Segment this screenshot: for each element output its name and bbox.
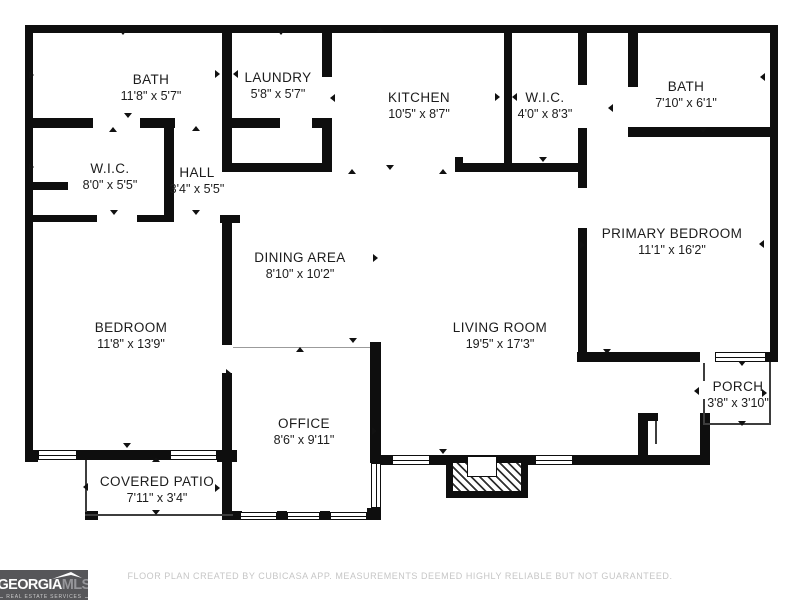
window-pane-line <box>241 516 276 517</box>
ceiling-break-line <box>655 421 657 444</box>
door-window-arrow-icon <box>124 113 132 118</box>
room-name: BATH <box>655 80 717 95</box>
door-window-arrow-icon <box>386 165 394 170</box>
footer-disclaimer: FLOOR PLAN CREATED BY CUBICASA APP. MEAS… <box>0 571 800 581</box>
wall <box>504 25 512 172</box>
door-window-arrow-icon <box>760 73 765 81</box>
room-name: KITCHEN <box>388 91 450 106</box>
door-window-arrow-icon <box>330 94 335 102</box>
room-label-dining-area: DINING AREA8'10" x 10'2" <box>254 251 345 281</box>
wall <box>367 508 381 520</box>
wall <box>25 25 778 33</box>
door-window-arrow-icon <box>226 369 231 377</box>
wall <box>577 352 700 362</box>
room-name: OFFICE <box>274 417 335 432</box>
wall <box>25 450 38 462</box>
room-name: PORCH <box>707 380 769 395</box>
wall <box>430 455 446 465</box>
room-name: LIVING ROOM <box>453 321 547 336</box>
door-window-arrow-icon <box>495 93 500 101</box>
room-label-hall: HALL3'4" x 5'5" <box>170 166 225 196</box>
logo-tagline: REAL ESTATE SERVICES <box>0 594 88 600</box>
door-window-arrow-icon <box>277 30 285 35</box>
door-window-arrow-icon <box>580 241 585 249</box>
roof-icon <box>51 571 83 580</box>
door-window-arrow-icon <box>608 104 613 112</box>
window <box>535 455 573 465</box>
door-window-arrow-icon <box>123 443 131 448</box>
door-window-arrow-icon <box>296 347 304 352</box>
window-pane-line <box>536 460 572 461</box>
fireplace-firebox <box>467 456 497 477</box>
floor-plan-canvas: BATH11'8" x 5'7"LAUNDRY5'8" x 5'7"KITCHE… <box>0 0 800 600</box>
wall <box>232 118 280 128</box>
door-window-arrow-icon <box>192 210 200 215</box>
room-name: DINING AREA <box>254 251 345 266</box>
wall <box>370 342 381 463</box>
wall <box>222 25 232 130</box>
room-dimensions: 5'8" x 5'7" <box>244 87 311 101</box>
room-name: LAUNDRY <box>244 71 311 86</box>
window-pane-line <box>171 455 216 456</box>
door-window-arrow-icon <box>603 349 611 354</box>
ceiling-break-line <box>703 423 771 425</box>
room-name: W.I.C. <box>518 91 573 106</box>
room-label-primary-bedroom: PRIMARY BEDROOM11'1" x 16'2" <box>602 227 743 257</box>
door-window-arrow-icon <box>192 126 200 131</box>
door-window-arrow-icon <box>699 128 707 133</box>
door-window-arrow-icon <box>439 449 447 454</box>
door-window-arrow-icon <box>376 27 384 32</box>
wall <box>137 215 173 222</box>
door-window-arrow-icon <box>119 30 127 35</box>
window <box>170 450 217 460</box>
door-window-arrow-icon <box>759 240 764 248</box>
ceiling-break-line <box>703 399 705 425</box>
window-pane-line <box>39 455 76 456</box>
window <box>371 463 381 508</box>
room-dimensions: 3'8" x 3'10" <box>707 396 769 410</box>
door-window-arrow-icon <box>29 71 34 79</box>
wall <box>25 215 97 222</box>
room-label-office: OFFICE8'6" x 9'11" <box>274 417 335 447</box>
floor-plan: BATH11'8" x 5'7"LAUNDRY5'8" x 5'7"KITCHE… <box>0 0 800 600</box>
room-dimensions: 11'1" x 16'2" <box>602 243 743 257</box>
wall <box>25 118 93 128</box>
window-pane-line <box>288 516 319 517</box>
room-dimensions: 3'4" x 5'5" <box>170 182 225 196</box>
wall <box>312 118 332 128</box>
room-label-bath: BATH7'10" x 6'1" <box>655 80 717 110</box>
door-window-arrow-icon <box>539 157 547 162</box>
window-pane-line <box>393 460 429 461</box>
door-window-arrow-icon <box>738 361 746 366</box>
wall <box>462 163 587 172</box>
room-label-covered-patio: COVERED PATIO7'11" x 3'4" <box>100 475 214 505</box>
wall <box>766 352 778 362</box>
window-pane-line <box>331 516 366 517</box>
room-dimensions: 8'0" x 5'5" <box>83 178 138 192</box>
window-pane-line <box>716 357 765 358</box>
wall <box>222 373 232 520</box>
door-window-arrow-icon <box>738 421 746 426</box>
door-window-arrow-icon <box>215 70 220 78</box>
window-pane-line <box>376 464 377 507</box>
room-label-laundry: LAUNDRY5'8" x 5'7" <box>244 71 311 101</box>
window <box>392 455 430 465</box>
door-window-arrow-icon <box>110 210 118 215</box>
door-window-arrow-icon <box>373 254 378 262</box>
door-window-arrow-icon <box>29 163 34 171</box>
ceiling-break-line <box>769 362 771 425</box>
window <box>330 512 367 520</box>
window <box>240 512 277 520</box>
georgia-mls-logo: GEORGIAMLS REAL ESTATE SERVICES <box>0 570 88 600</box>
door-window-arrow-icon <box>109 127 117 132</box>
door-window-arrow-icon <box>152 510 160 515</box>
door-window-arrow-icon <box>512 93 517 101</box>
room-name: COVERED PATIO <box>100 475 214 490</box>
wall <box>320 511 330 520</box>
window <box>38 450 77 460</box>
door-window-arrow-icon <box>233 70 238 78</box>
wall <box>528 455 535 465</box>
room-label-porch: PORCH3'8" x 3'10" <box>707 380 769 410</box>
door-window-arrow-icon <box>372 427 377 435</box>
room-label-bedroom: BEDROOM11'8" x 13'9" <box>95 321 168 351</box>
room-name: BEDROOM <box>95 321 168 336</box>
room-dimensions: 19'5" x 17'3" <box>453 337 547 351</box>
wall <box>25 182 68 190</box>
ceiling-break-line <box>703 363 705 381</box>
wall <box>25 25 33 462</box>
door-window-arrow-icon <box>439 169 447 174</box>
wall <box>140 118 175 128</box>
wall <box>277 511 287 520</box>
room-name: PRIMARY BEDROOM <box>602 227 743 242</box>
room-dimensions: 4'0" x 8'3" <box>518 107 573 121</box>
wall <box>322 25 332 77</box>
door-window-arrow-icon <box>694 387 699 395</box>
room-dimensions: 7'11" x 3'4" <box>100 491 214 505</box>
door-window-arrow-icon <box>152 457 160 462</box>
wall <box>770 25 778 362</box>
wall <box>578 128 587 188</box>
wall <box>628 25 638 87</box>
room-label-w-i-c: W.I.C.8'0" x 5'5" <box>83 162 138 192</box>
wall <box>578 25 587 85</box>
room-label-bath: BATH11'8" x 5'7" <box>121 73 182 103</box>
room-name: W.I.C. <box>83 162 138 177</box>
room-dimensions: 11'8" x 13'9" <box>95 337 168 351</box>
wall <box>380 455 392 465</box>
door-window-arrow-icon <box>215 484 220 492</box>
room-dimensions: 8'6" x 9'11" <box>274 433 335 447</box>
door-window-arrow-icon <box>83 483 88 491</box>
room-label-living-room: LIVING ROOM19'5" x 17'3" <box>453 321 547 351</box>
window <box>287 512 320 520</box>
wall <box>700 413 710 465</box>
logo-brand-row: GEORGIAMLS <box>0 574 88 592</box>
room-dimensions: 11'8" x 5'7" <box>121 89 182 103</box>
room-name: BATH <box>121 73 182 88</box>
room-dimensions: 10'5" x 8'7" <box>388 107 450 121</box>
room-label-kitchen: KITCHEN10'5" x 8'7" <box>388 91 450 121</box>
wall <box>222 163 332 172</box>
room-label-w-i-c: W.I.C.4'0" x 8'3" <box>518 91 573 121</box>
wall <box>222 215 232 345</box>
room-dimensions: 8'10" x 10'2" <box>254 267 345 281</box>
room-dimensions: 7'10" x 6'1" <box>655 96 717 110</box>
door-window-arrow-icon <box>348 169 356 174</box>
door-window-arrow-icon <box>349 338 357 343</box>
room-name: HALL <box>170 166 225 181</box>
wall <box>638 413 658 421</box>
